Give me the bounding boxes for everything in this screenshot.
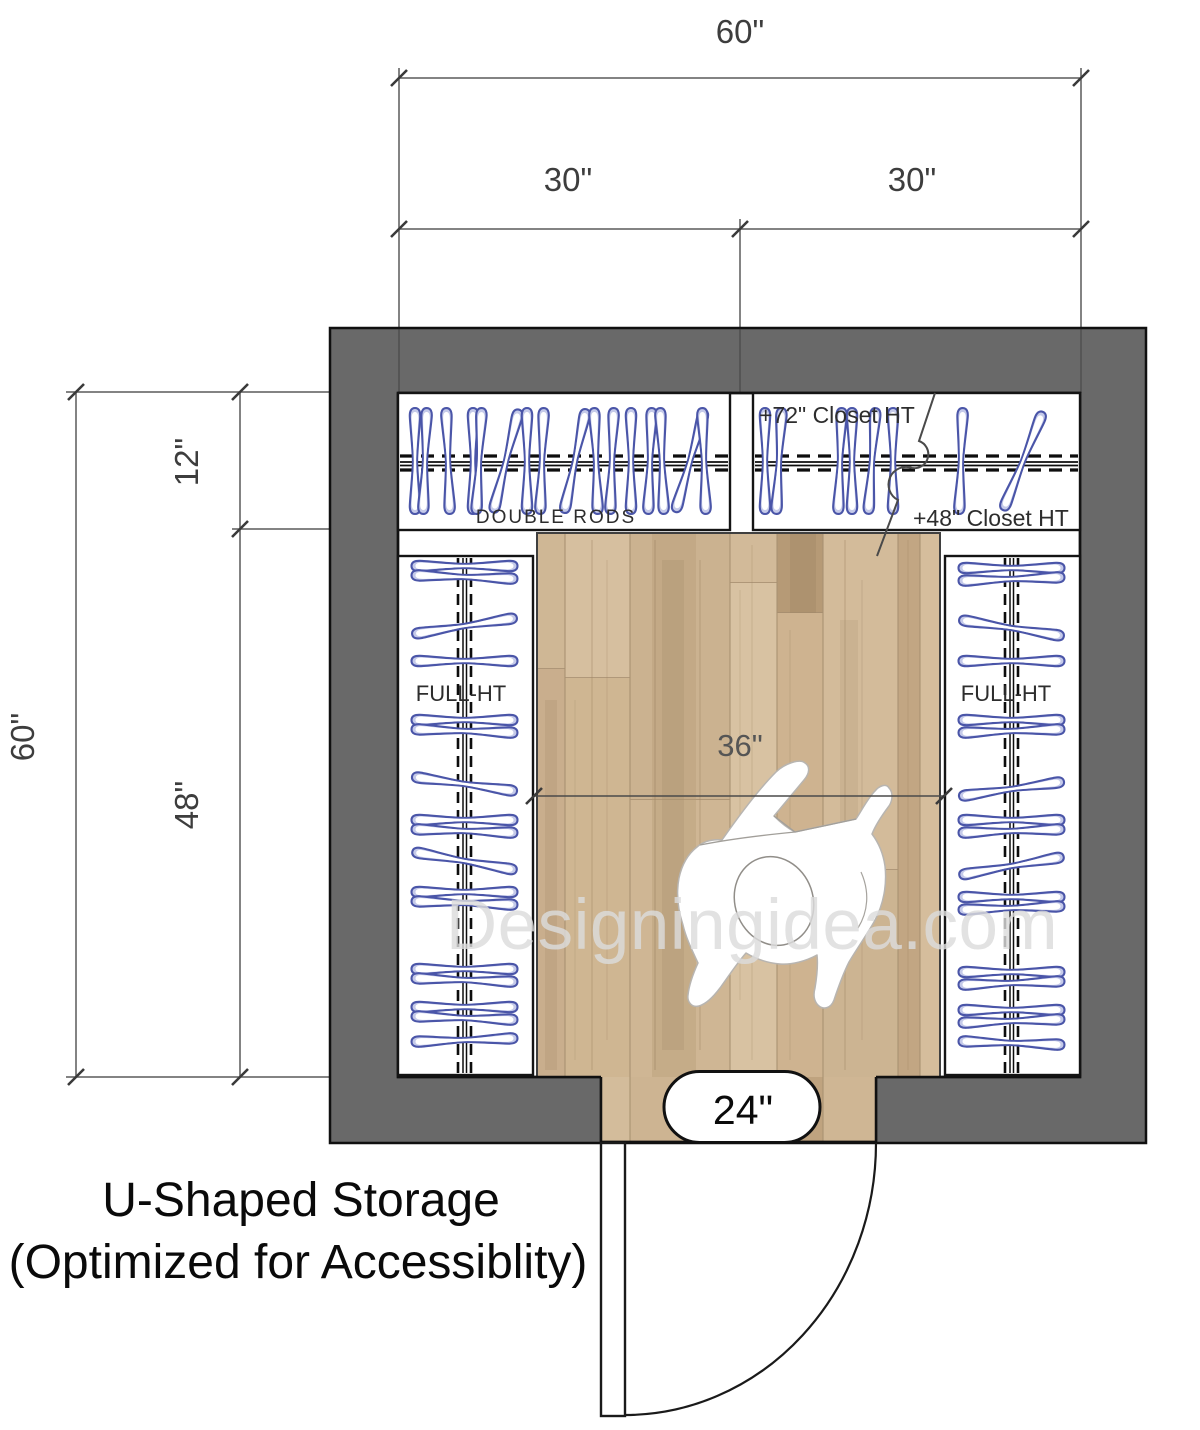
svg-text:36": 36"	[717, 728, 763, 763]
svg-text:30": 30"	[888, 161, 936, 198]
svg-text:DOUBLE RODS: DOUBLE RODS	[476, 507, 636, 528]
svg-text:Designingidea.com: Designingidea.com	[446, 886, 1058, 965]
svg-text:30": 30"	[544, 161, 592, 198]
svg-text:+48" Closet HT: +48" Closet HT	[913, 505, 1069, 531]
svg-text:(Optimized for Accessiblity): (Optimized for Accessiblity)	[9, 1236, 588, 1289]
svg-text:12": 12"	[168, 438, 205, 486]
svg-text:60": 60"	[4, 713, 41, 761]
svg-text:FULL-HT: FULL-HT	[416, 681, 506, 706]
svg-text:48": 48"	[168, 781, 205, 829]
svg-text:FULL-HT: FULL-HT	[961, 681, 1051, 706]
svg-text:U-Shaped Storage: U-Shaped Storage	[102, 1174, 500, 1227]
svg-text:+72" Closet HT: +72" Closet HT	[759, 402, 915, 428]
svg-text:24": 24"	[713, 1087, 773, 1133]
svg-text:60": 60"	[716, 13, 764, 50]
